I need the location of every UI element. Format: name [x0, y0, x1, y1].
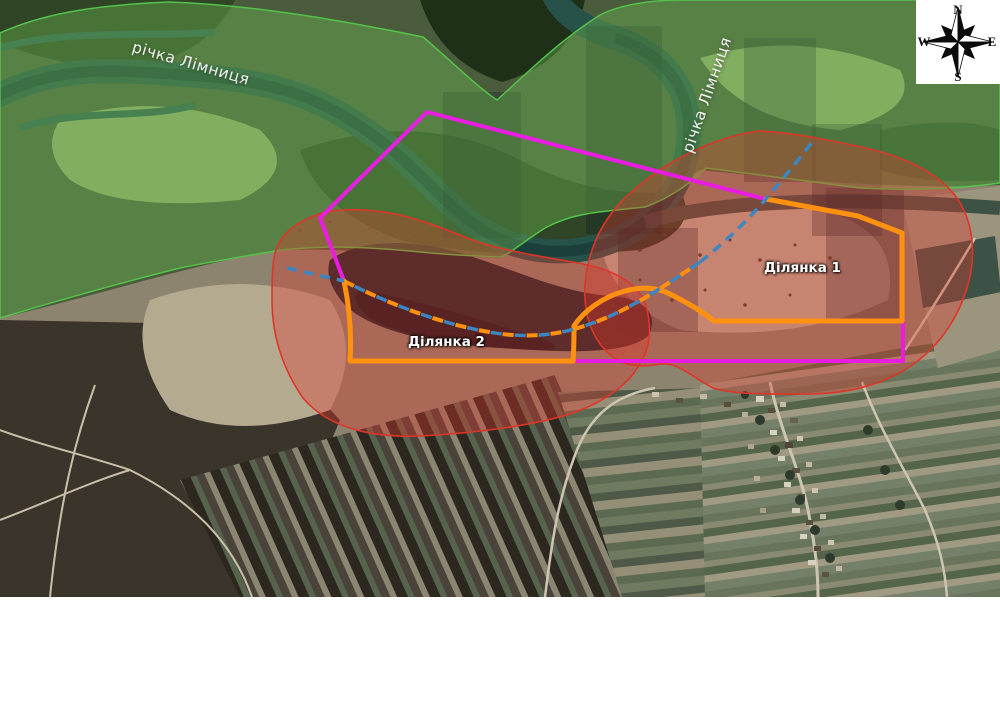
compass-w-label: W [918, 34, 931, 49]
map-view: річка Лімниця річка Лімниця Ділянка 1 Ді… [0, 0, 1000, 597]
compass-main-points [923, 7, 993, 77]
compass-rose: N E S W [916, 0, 1000, 84]
compass-n-label: N [953, 2, 963, 17]
legend-panel: Умовні позначення Контур СД і підрахунку… [0, 597, 1000, 707]
page: річка Лімниця річка Лімниця Ділянка 1 Ді… [0, 0, 1000, 707]
satellite-map [0, 0, 1000, 597]
compass-s-label: S [954, 69, 961, 84]
compass-e-label: E [988, 34, 997, 49]
